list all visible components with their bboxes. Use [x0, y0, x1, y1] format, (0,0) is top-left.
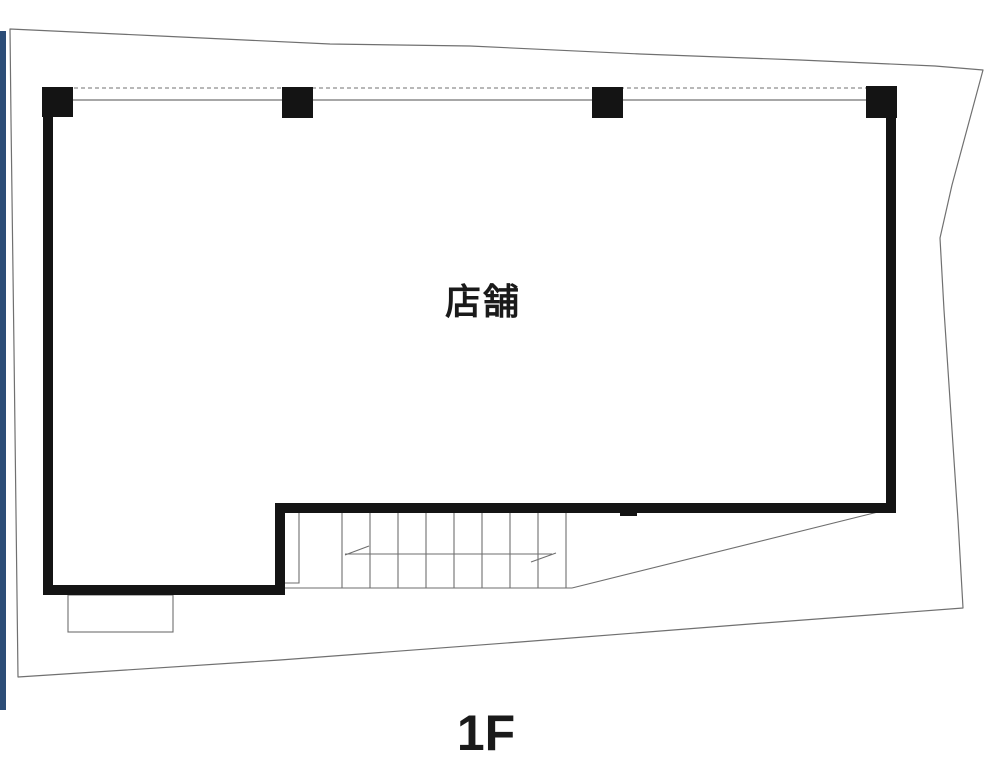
- floor-plan-drawing: [0, 0, 1000, 761]
- entrance-porch: [68, 595, 173, 632]
- stair-treads: [342, 513, 566, 588]
- column: [592, 87, 623, 118]
- site-diagonal-line: [572, 510, 886, 588]
- wall-left: [43, 87, 53, 595]
- floor-plan-page: 店舗 1F: [0, 0, 1000, 761]
- wall-step: [275, 503, 285, 595]
- stair-landing-line: [285, 513, 299, 583]
- stair-break-line: [345, 546, 556, 562]
- room-label: 店舗: [445, 273, 521, 325]
- site-boundary-line: [10, 29, 983, 677]
- wall-bottom-right: [275, 503, 896, 513]
- column: [42, 87, 73, 117]
- wall-bottom-left: [43, 585, 285, 595]
- wall-right: [886, 87, 896, 513]
- floor-label: 1F: [457, 704, 515, 762]
- exterior-walls: [43, 87, 896, 595]
- column-bottom-wall: [620, 504, 637, 516]
- staircase: [285, 513, 572, 588]
- column: [282, 87, 313, 118]
- column: [866, 86, 897, 118]
